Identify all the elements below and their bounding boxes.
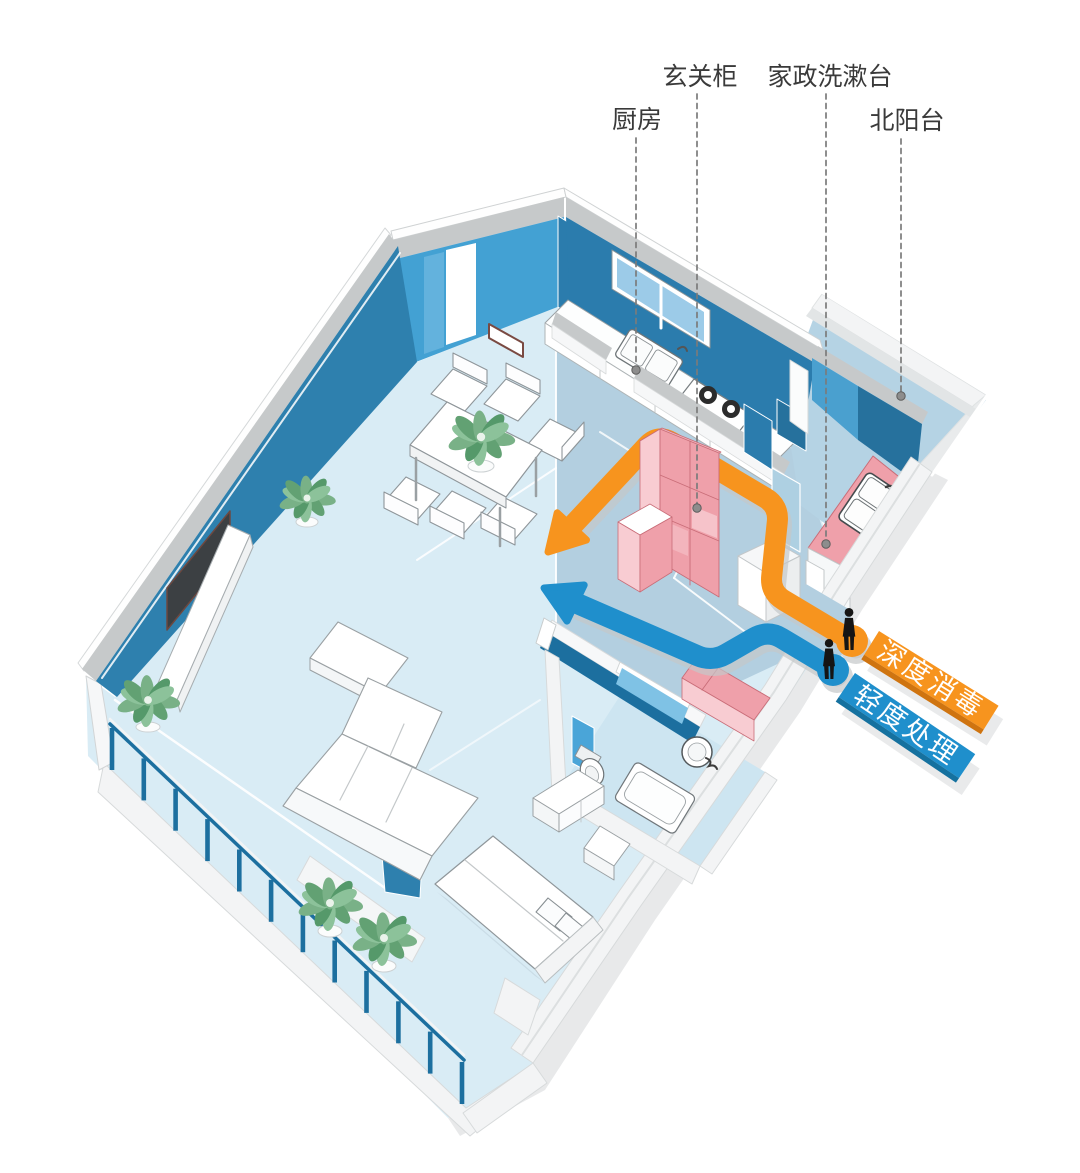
svg-text:北阳台: 北阳台: [869, 107, 944, 135]
svg-text:玄关柜: 玄关柜: [662, 63, 737, 91]
svg-text:厨房: 厨房: [612, 106, 662, 134]
svg-text:家政洗漱台: 家政洗漱台: [767, 63, 892, 91]
